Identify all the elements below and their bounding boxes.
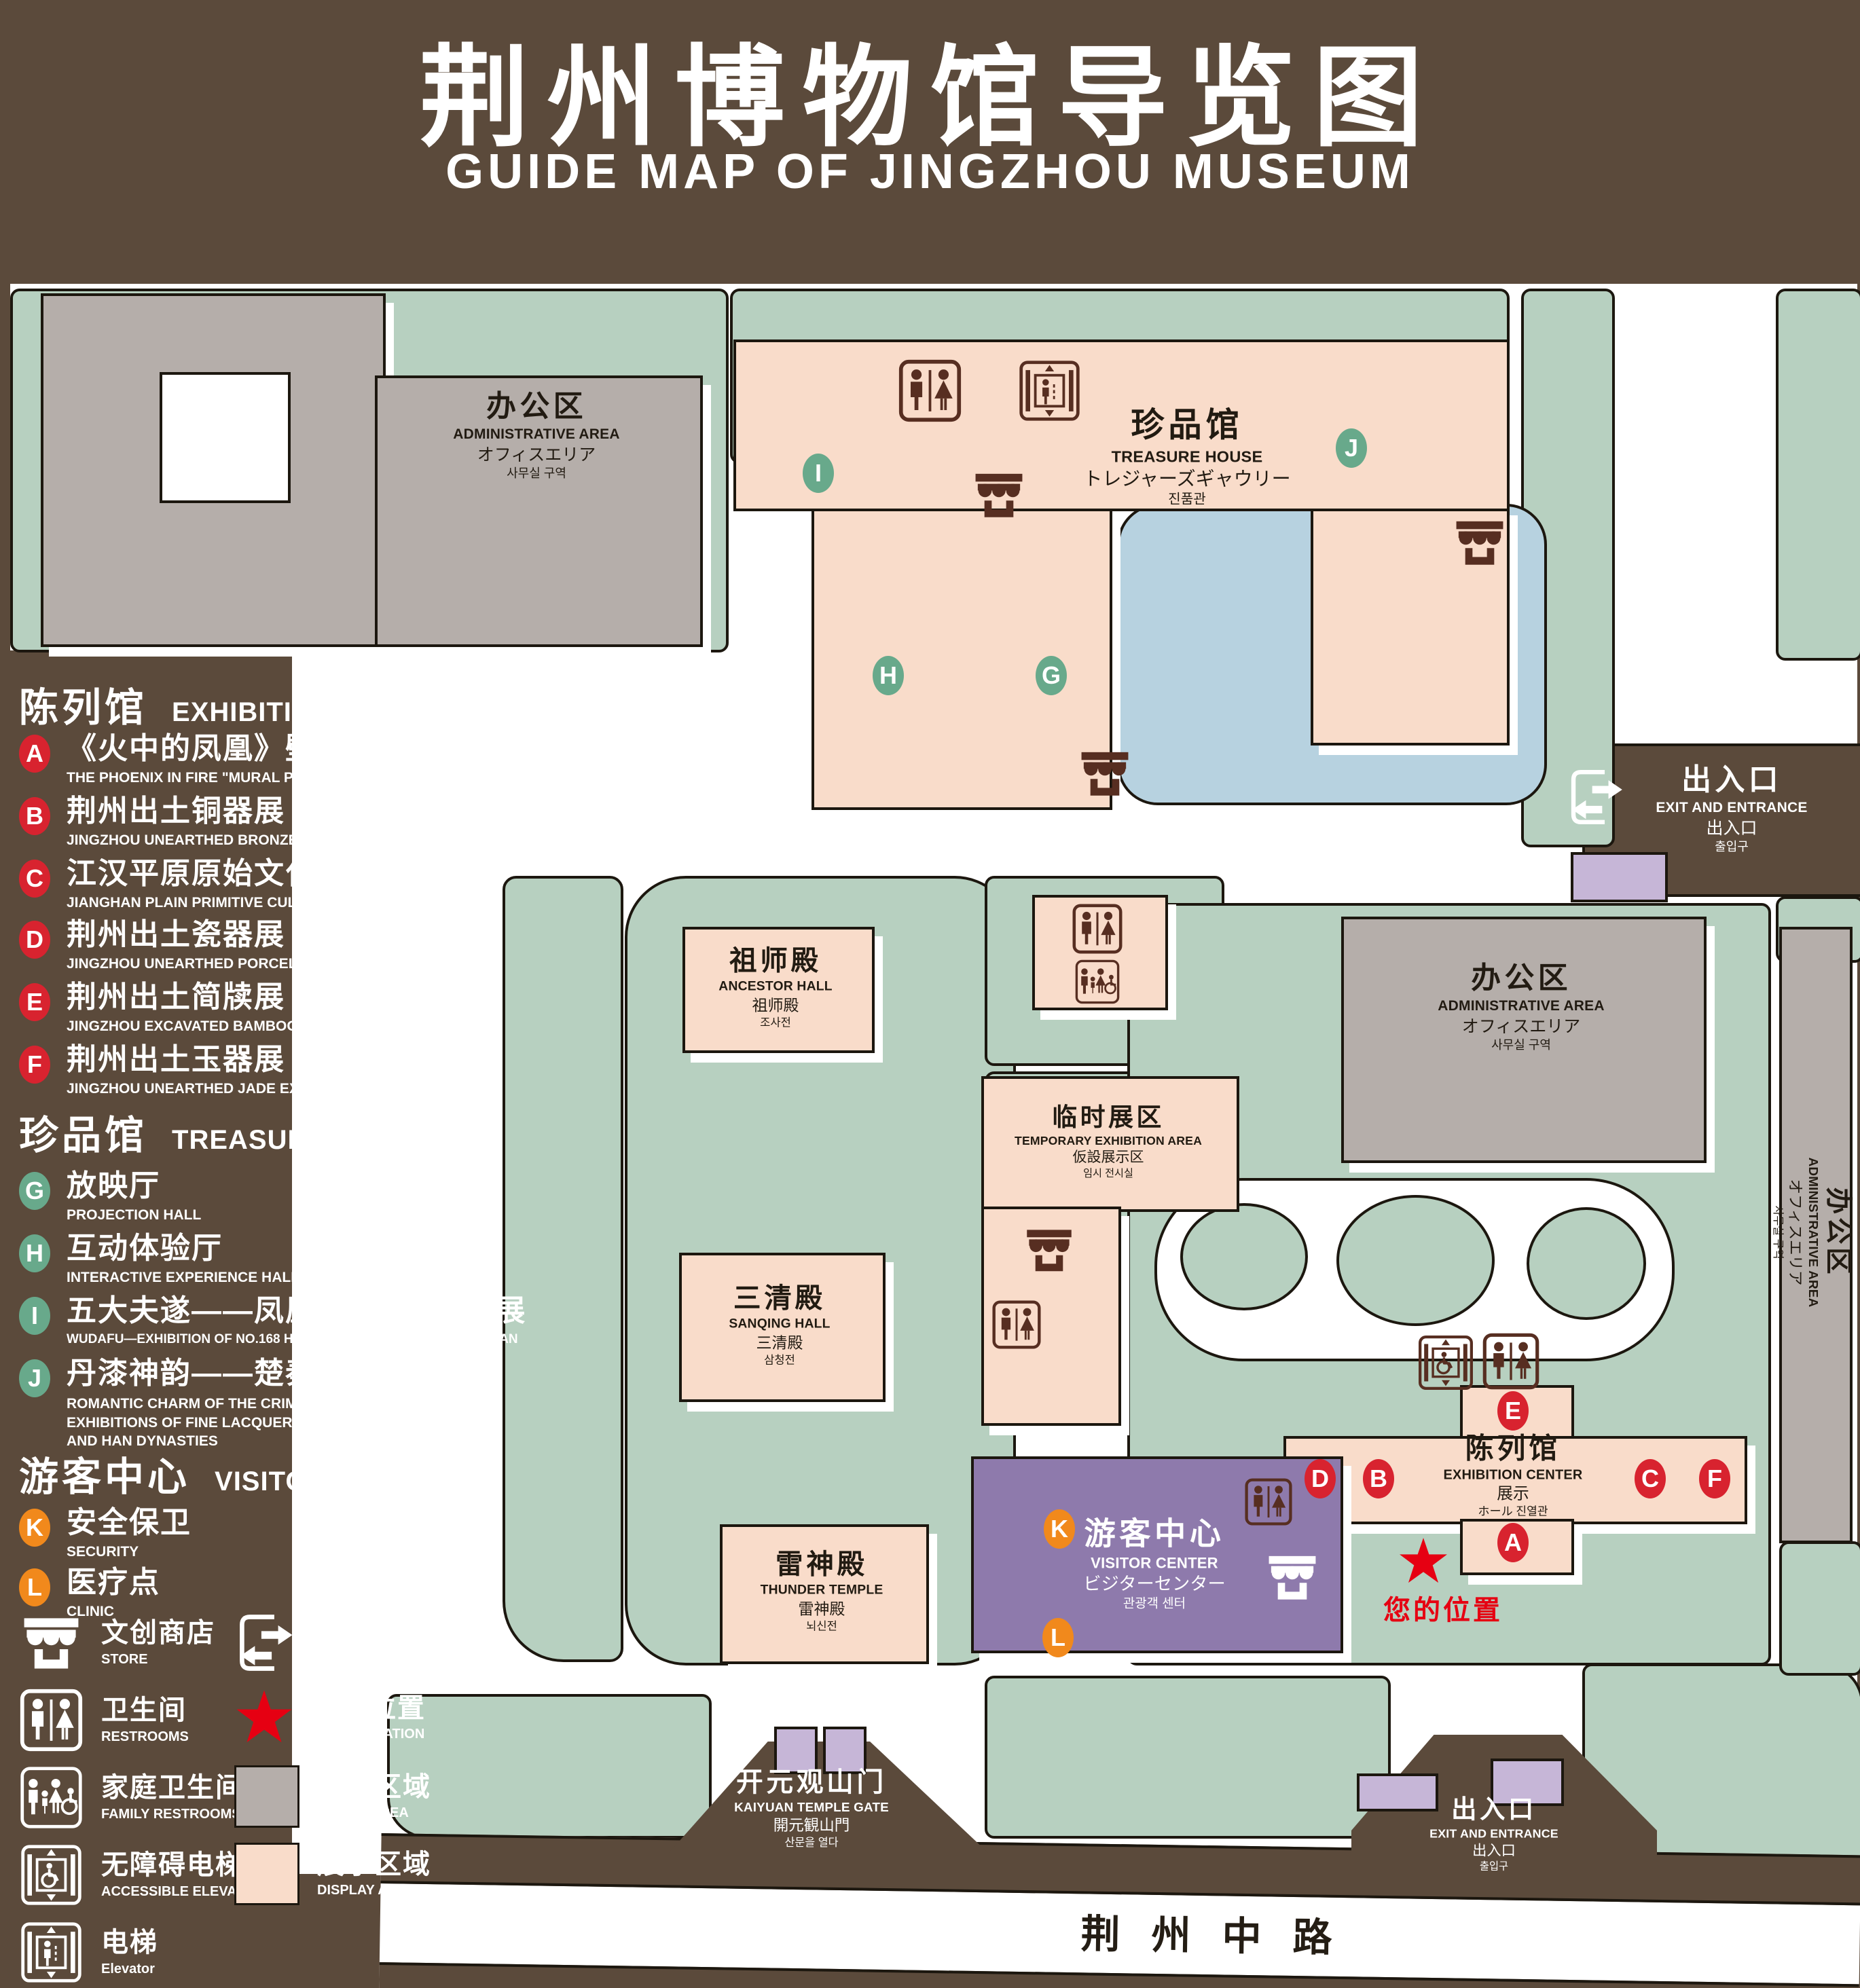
legend-item-G: G 放映厅PROJECTION HALL 1F bbox=[19, 1169, 484, 1223]
marker-D: D bbox=[1305, 1459, 1336, 1498]
lawn bbox=[387, 1694, 712, 1839]
marker-G: G bbox=[1036, 656, 1067, 695]
display-swatch bbox=[234, 1843, 299, 1905]
badge-H: H bbox=[19, 1234, 50, 1272]
exit-bottom-label: 出入口 EXIT AND ENTRANCE 出入口 출입구 bbox=[1429, 1793, 1558, 1873]
elevator-icon bbox=[19, 1920, 84, 1985]
guide-map-page: 荆州博物馆导览图 GUIDE MAP OF JINGZHOU MUSEUM bbox=[0, 0, 1860, 1988]
store-icon bbox=[1264, 1549, 1320, 1605]
legend-symbol-accessible-elevator: 无障碍电梯ACCESSIBLE ELEVATOR bbox=[19, 1843, 264, 1907]
legend-symbol-display-area: 展示区域DISPLAY AREA bbox=[234, 1843, 431, 1905]
marker-C: C bbox=[1635, 1459, 1666, 1498]
temporary-exhibition-label: 临时展区 TEMPORARY EXHIBITION AREA 仮設展示区 임시 … bbox=[1015, 1101, 1202, 1180]
restroom-icon bbox=[991, 1300, 1042, 1350]
lawn bbox=[1779, 1541, 1860, 1676]
legend-item-F: F 荆州出土玉器展JINGZHOU UNEARTHED JADE EXHIBIT… bbox=[19, 1043, 484, 1097]
lawn bbox=[1776, 289, 1860, 661]
legend-item-I: I 五大夫遂——凤凰山168号汉墓展WUDAFU—EXHIBITION OF N… bbox=[19, 1294, 484, 1347]
restroom-icon bbox=[1482, 1332, 1540, 1391]
exhibition-center-label: 陈列馆 EXHIBITION CENTER 展示 ホール 진열관 bbox=[1444, 1430, 1583, 1519]
badge-G: G bbox=[19, 1172, 50, 1210]
family-restroom-icon bbox=[19, 1765, 84, 1830]
garden-island bbox=[1527, 1207, 1646, 1320]
exit-top-label: 出入口 EXIT AND ENTRANCE 出入口 출입구 bbox=[1656, 761, 1807, 855]
store-icon bbox=[19, 1610, 84, 1675]
legend-section-treasure-house: 珍品馆 TREASURE HOUSE bbox=[19, 1103, 435, 1160]
store-icon bbox=[1023, 1223, 1076, 1276]
road-edge bbox=[379, 1962, 1859, 1988]
page-subtitle: GUIDE MAP OF JINGZHOU MUSEUM bbox=[0, 144, 1860, 200]
legend-item-K: K 安全保卫SECURITY 1F bbox=[19, 1506, 484, 1560]
garden-island bbox=[1336, 1195, 1495, 1326]
legend-item-E: E 荆州出土简牍展JINGZHOU EXCAVATED BAMBOO SLIPS… bbox=[19, 980, 484, 1035]
office-swatch bbox=[234, 1765, 299, 1828]
legend-symbol-exit: 出入口EXIT AND ENTRANCE bbox=[234, 1610, 458, 1675]
legend-item-B: B 荆州出土铜器展JINGZHOU UNEARTHED BRONZE WARE … bbox=[19, 794, 484, 849]
badge-D: D bbox=[19, 921, 50, 959]
legend-item-C: C 江汉平原原始文化展JIANGHAN PLAIN PRIMITIVE CULT… bbox=[19, 857, 484, 911]
legend-item-H: H 互动体验厅INTERACTIVE EXPERIENCE HALL 1F bbox=[19, 1232, 484, 1286]
legend-section-visitor-center: 游客中心 VISITOR CENTER bbox=[19, 1445, 452, 1502]
legend-item-A: A 《火中的凤凰》壁画THE PHOENIX IN FIRE "MURAL PA… bbox=[19, 732, 484, 786]
badge-I: I bbox=[19, 1297, 50, 1335]
badge-B: B bbox=[19, 797, 50, 835]
restroom-icon bbox=[19, 1688, 84, 1752]
legend-symbol-family-restrooms: 家庭卫生间FAMILY RESTROOMS bbox=[19, 1765, 244, 1830]
marker-L: L bbox=[1042, 1618, 1074, 1657]
legend-symbol-store: 文创商店STORE bbox=[19, 1610, 215, 1675]
admin-topleft-label: 办公区 ADMINISTRATIVE AREA オフィスエリア 사무실 구역 bbox=[453, 388, 620, 481]
badge-A: A bbox=[19, 735, 50, 773]
admin-courtyard bbox=[160, 372, 291, 503]
badge-K: K bbox=[19, 1509, 50, 1547]
marker-K: K bbox=[1044, 1509, 1075, 1549]
marker-H: H bbox=[873, 656, 904, 695]
legend-symbol-restrooms: 卫生间RESTROOMS bbox=[19, 1688, 189, 1752]
family-restroom-icon bbox=[1074, 959, 1120, 1005]
elevator-icon bbox=[1017, 358, 1082, 423]
marker-J: J bbox=[1336, 428, 1367, 468]
location-star-icon bbox=[234, 1688, 294, 1748]
road-label: 荆州中路 bbox=[1080, 1902, 1364, 1963]
gate-structure bbox=[1571, 852, 1668, 902]
badge-E: E bbox=[19, 983, 50, 1021]
store-icon bbox=[1452, 515, 1508, 570]
sanqing-hall-label: 三清殿 SANQING HALL 三清殿 삼청전 bbox=[729, 1281, 830, 1367]
legend-section-exhibition-center: 陈列馆 EXHIBITION CENTER bbox=[19, 676, 458, 733]
legend-item-D: D 荆州出土瓷器展JINGZHOU UNEARTHED PORCELAIN EX… bbox=[19, 918, 484, 972]
garden-island bbox=[1180, 1203, 1308, 1310]
legend-symbol-your-location: 您的位置YOUR LOCATION bbox=[234, 1688, 426, 1748]
marker-F: F bbox=[1699, 1459, 1730, 1498]
thunder-temple-label: 雷神殿 THUNDER TEMPLE 雷神殿 뇌신전 bbox=[761, 1547, 883, 1633]
admin-strip-label: 办公区 ADMINISTRATIVE AREA オフィスエリア 사무실 구역 bbox=[1771, 1158, 1855, 1308]
accessible-elevator-icon bbox=[19, 1843, 84, 1907]
treasure-house-lower bbox=[812, 506, 1112, 810]
lawn bbox=[985, 1676, 1391, 1839]
badge-J: J bbox=[19, 1359, 50, 1397]
exit-icon bbox=[234, 1610, 299, 1675]
badge-F: F bbox=[19, 1046, 50, 1084]
marker-B: B bbox=[1363, 1459, 1394, 1498]
store-icon bbox=[971, 467, 1027, 523]
store-icon bbox=[1077, 745, 1133, 801]
restroom-icon bbox=[1244, 1477, 1293, 1526]
marker-E: E bbox=[1497, 1391, 1529, 1431]
restroom-icon bbox=[1072, 903, 1123, 955]
exit-icon bbox=[1566, 766, 1628, 828]
gate-structure bbox=[1357, 1773, 1438, 1811]
your-location-label: 您的位置 bbox=[1383, 1588, 1503, 1627]
accessible-elevator-icon bbox=[1417, 1333, 1475, 1392]
restroom-icon bbox=[898, 358, 962, 423]
marker-A: A bbox=[1497, 1523, 1529, 1562]
location-star-icon bbox=[1398, 1536, 1449, 1587]
kaiyuan-gate-label: 开元观山门 KAIYUAN TEMPLE GATE 開元観山門 산문을 열다 bbox=[734, 1765, 889, 1849]
marker-I: I bbox=[803, 454, 834, 493]
admin-right-label: 办公区 ADMINISTRATIVE AREA オフィスエリア 사무실 구역 bbox=[1438, 959, 1605, 1053]
visitor-center-label: 游客中心 VISITOR CENTER ビジターセンター 관광객 센터 bbox=[1083, 1513, 1225, 1612]
treasure-house-label: 珍品馆 TREASURE HOUSE トレジャーズギャウリー 진품관 bbox=[1083, 404, 1290, 509]
ancestor-hall-label: 祖师殿 ANCESTOR HALL 祖师殿 조사전 bbox=[718, 943, 832, 1029]
badge-L: L bbox=[19, 1568, 50, 1606]
legend-item-J: J 丹漆神韵——楚秦汉漆器精品展ROMANTIC CHARM OF THE CR… bbox=[19, 1357, 484, 1450]
badge-C: C bbox=[19, 860, 50, 898]
lawn bbox=[503, 876, 623, 1662]
legend-symbol-elevator: 电梯Elevator bbox=[19, 1920, 158, 1985]
legend-symbol-office-area: 办公区域OFFICE AREA bbox=[234, 1765, 431, 1828]
